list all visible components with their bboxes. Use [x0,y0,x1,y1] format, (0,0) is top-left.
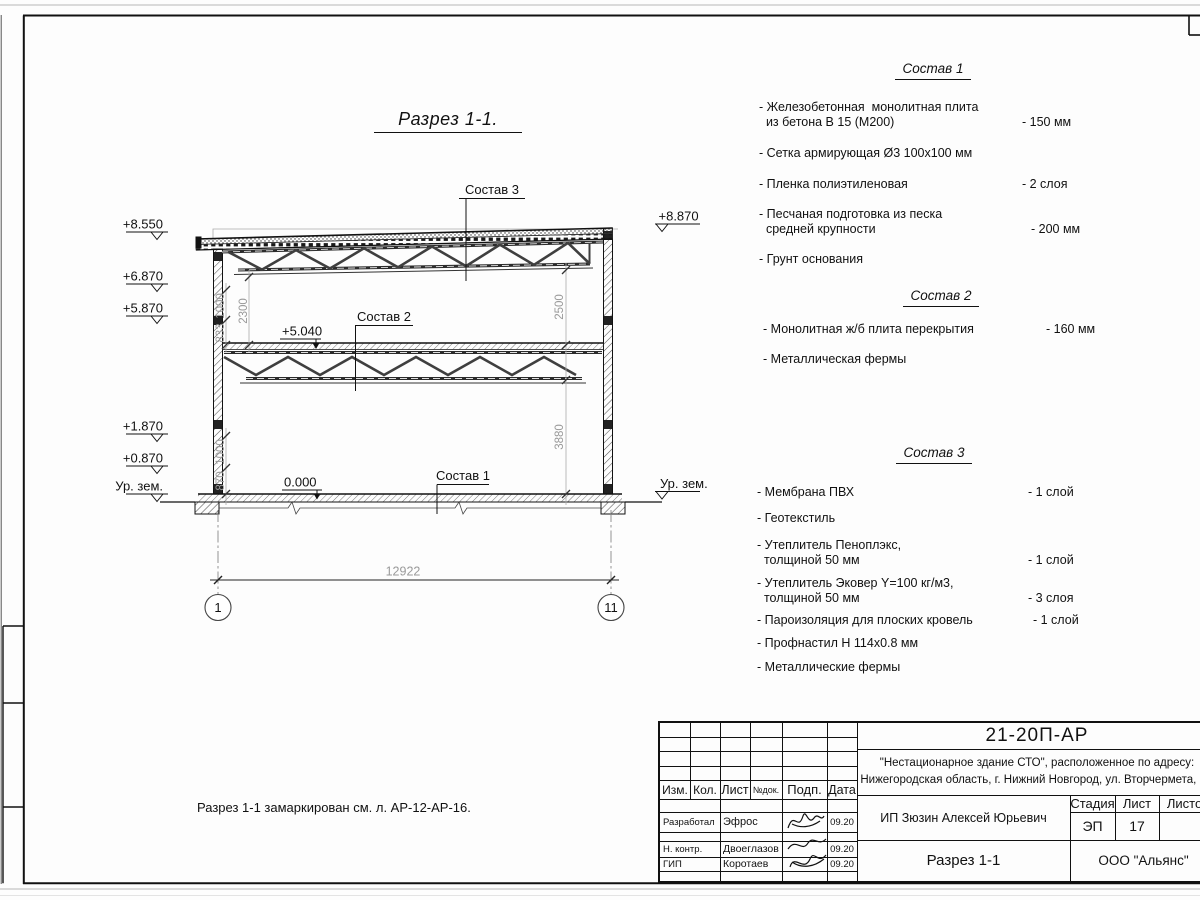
item-value: - 1 слой [1028,485,1074,500]
list-item: - Утеплитель Пеноплэкс, толщиной 50 мм -… [757,538,1200,568]
floor-truss [224,353,602,384]
svg-text:11: 11 [604,600,618,615]
svg-text:1000: 1000 [215,439,227,465]
svg-text:3880: 3880 [554,424,566,450]
item-text: - Металлические фермы [757,660,900,675]
col-izm: Изм. [660,780,690,799]
row-date: 09.20 [827,812,857,832]
col-ndok: №док. [750,780,782,799]
list-item: - Металлические фермы [757,660,1200,675]
list-item: - Утеплитель Эковер Y=100 кг/м3, толщино… [757,576,1200,606]
list-item: - Металлическая фермы [763,352,1200,367]
item-value: - 1 слой [1033,613,1079,628]
stage-label: Стадия [1070,795,1115,812]
item-text: - Сетка армирующая Ø3 100x100 мм [759,146,972,161]
svg-text:2300: 2300 [238,298,250,324]
elevation-label: +0.870 [123,451,163,466]
leader-label-sostav1: Состав 1 [436,468,490,483]
list-item: - Мембрана ПВХ - 1 слой [757,485,1200,500]
signature-icon [784,835,830,877]
leader-sostav2 [355,326,413,392]
stage-value: ЭП [1070,812,1115,840]
dim-chain-left-upper: 833 1000 [215,283,230,352]
svg-text:1: 1 [214,600,221,615]
item-text: - Грунт основания [759,252,863,267]
list-item: - Пароизоляция для плоских кровель - 1 с… [757,613,1200,628]
elevation-label: +6.870 [123,269,163,284]
item-value: - 200 мм [1031,222,1080,237]
list-item: - Пленка полиэтиленовая - 2 слоя [759,177,1200,192]
svg-text:+5.040: +5.040 [282,324,322,339]
elevation-mark-roof-right: +8.870 [655,209,700,232]
item-text: - Мембрана ПВХ [757,485,854,500]
dim-total-label: 12922 [386,565,421,579]
row-role: ГИП [660,857,720,871]
grid-bubble-1: 1 [205,595,231,621]
wall-right [604,228,613,494]
company-name: ООО "Альянс" [1070,840,1200,881]
comp2-title: Состав 2 [903,288,979,307]
client-name: ИП Зюзин Алексей Юрьевич [857,795,1070,840]
item-value: - 150 мм [1022,115,1071,130]
elevation-label: Ур. зем. [115,479,163,494]
grid-bubble-11: 11 [598,595,624,621]
item-value: - 160 мм [1046,322,1095,337]
sheet-note: Разрез 1-1 замаркирован см. л. АР-12-АР-… [197,800,471,815]
item-value: - 1 слой [1028,553,1074,568]
col-kol: Кол. [690,780,720,799]
comp1-title: Состав 1 [895,61,971,80]
elevation-mark-ground-right: Ур. зем. [655,476,708,499]
dim-total: 12922 [210,510,619,594]
title-block: Изм. Кол. Лист №док. Подп. Дата Разработ… [658,721,1200,883]
item-value: - 3 слоя [1028,591,1073,606]
svg-text:870: 870 [215,471,227,490]
list-item: - Профнастил Н 114x0.8 мм [757,636,1200,651]
sheet-title: Разрез 1-1 [857,840,1070,881]
list-item: - Сетка армирующая Ø3 100x100 мм [759,146,1200,161]
project-address-line2: Нижегородская область, г. Нижний Новгоро… [860,772,1200,789]
elevation-label: +1.870 [123,419,163,434]
list-item: - Песчаная подготовка из песка средней к… [759,207,1200,237]
leader-label-sostav2: Состав 2 [357,309,411,324]
frame-corner-box [1189,17,1200,36]
svg-text:2500: 2500 [554,294,566,320]
row-name: Коротаев [720,857,782,871]
list-item: - Геотекстиль [757,511,1200,526]
list-item: - Железобетонная монолитная плита из бет… [759,100,1200,130]
item-text: - Металлическая фермы [763,352,906,367]
col-data: Дата [827,780,857,799]
elevation-label: +5.870 [123,301,163,316]
item-text: - Монолитная ж/б плита перекрытия [763,322,974,337]
list-item: - Грунт основания [759,252,1200,267]
row-role: Разработал [660,812,720,832]
item-text: - Утеплитель Эковер Y=100 кг/м3, толщино… [757,576,953,606]
signature-icon [784,808,826,834]
elevation-labels-left: +8.550 +6.870 +5.870 +1.870 +0.870 Ур. з… [115,217,163,494]
item-text: - Утеплитель Пеноплэкс, толщиной 50 мм [757,538,901,568]
item-text: - Геотекстиль [757,511,835,526]
elevation-label: +8.550 [123,217,163,232]
ground-slab [160,494,662,514]
svg-text:833: 833 [215,323,227,342]
item-text: - Пароизоляция для плоских кровель [757,613,973,628]
comp3-title: Состав 3 [896,445,972,464]
section-view-title: Разрез 1-1. [374,109,522,133]
list-item: - Монолитная ж/б плита перекрытия - 160 … [763,322,1200,337]
floor-slab-2 [223,343,604,350]
svg-text:Ур. зем.: Ур. зем. [660,476,708,491]
row-date: 09.20 [827,857,857,871]
drawing-sheet: { "section": { "title": "Разрез 1-1.", "… [0,0,1200,900]
row-role: Н. контр. [660,841,720,857]
svg-text:1000: 1000 [215,293,227,319]
sheet-label: Лист [1115,795,1159,812]
item-text: - Железобетонная монолитная плита из бет… [759,100,978,130]
item-text: - Пленка полиэтиленовая [759,177,908,192]
item-text: - Профнастил Н 114x0.8 мм [757,636,918,651]
col-podp: Подп. [782,780,827,799]
item-value: - 2 слоя [1022,177,1067,192]
dim-chain-right: 2500 3880 [554,263,570,505]
leader-label-sostav3: Состав 3 [465,182,519,197]
svg-text:+8.870: +8.870 [659,209,699,224]
frame-side-boxes [3,626,24,883]
row-name: Двоеглазов [720,841,782,857]
dim-chain-inner: 2300 [238,270,253,352]
sheet-value: 17 [1115,812,1159,840]
project-name-line1: "Нестационарное здание СТО", расположенн… [880,755,1195,772]
sheets-label: Листов [1159,795,1200,812]
item-text: - Песчаная подготовка из песка средней к… [759,207,942,237]
row-date: 09.20 [827,841,857,857]
doc-number: 21-20П-АР [857,723,1200,749]
row-name: Эфрос [720,812,782,832]
col-list: Лист [720,780,750,799]
svg-text:0.000: 0.000 [284,475,317,490]
